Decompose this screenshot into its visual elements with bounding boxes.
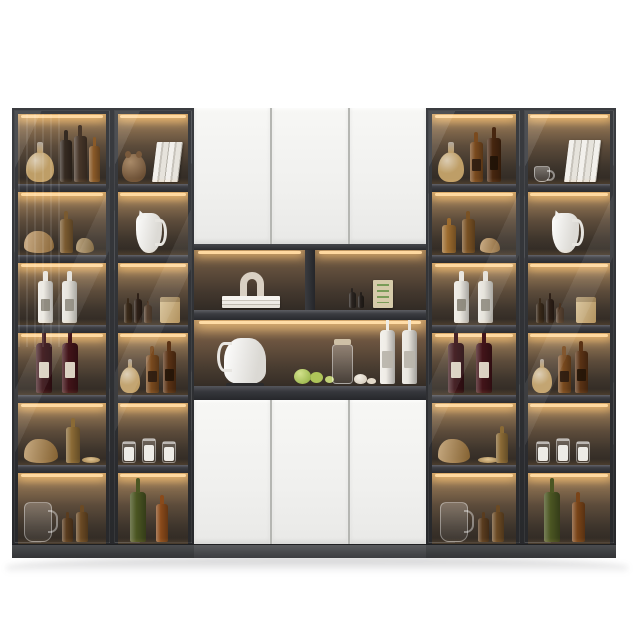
glass-decanter <box>532 367 552 393</box>
right-outer-cabinet-shelf-4 <box>528 333 610 395</box>
candle-jar <box>142 438 156 463</box>
right-inner-cabinet-shelf-6 <box>432 473 516 544</box>
whisky-bottle <box>575 351 588 393</box>
white-ceramic-bottle <box>478 281 493 323</box>
glass-decanter <box>120 367 140 393</box>
white-book-stack <box>222 296 280 308</box>
shelf-board <box>18 184 106 192</box>
gold-glass-decor <box>76 238 94 253</box>
bear-figurine <box>122 154 146 182</box>
shelf-board <box>18 465 106 473</box>
condiment-bottle <box>536 303 544 323</box>
green-wine-bottle <box>130 492 146 542</box>
amber-bottle <box>66 427 80 463</box>
left-inner-cabinet-shelf-1 <box>118 114 188 184</box>
right-outer-cabinet-shelf-2 <box>528 192 610 255</box>
white-ceramic-bottle <box>62 281 77 323</box>
glass-pitcher <box>440 502 468 542</box>
white-wine-bottle <box>402 330 417 384</box>
shelf-board <box>528 395 610 403</box>
candle-jar <box>556 438 570 463</box>
right-inner-cabinet-shelf-4 <box>432 333 516 395</box>
floor-shadow <box>6 557 628 573</box>
center-top-door-3 <box>350 108 426 244</box>
condiment-bottle <box>144 305 152 323</box>
left-inner-cabinet-shelf-5 <box>118 403 188 465</box>
shelf-board <box>18 325 106 333</box>
red-wine-bottle <box>448 343 464 393</box>
center-top-door-2 <box>272 108 348 244</box>
amber-glass-decor <box>438 439 470 463</box>
left-inner-cabinet-plinth <box>112 544 194 558</box>
white-jug <box>552 213 579 253</box>
right-inner-cabinet-shelf-2 <box>432 192 516 255</box>
shelf-board <box>18 255 106 263</box>
left-outer-cabinet <box>12 108 112 557</box>
right-outer-cabinet <box>522 108 616 557</box>
display-niche-right <box>315 250 426 310</box>
kraft-paper-bag <box>160 297 180 323</box>
whisky-bottle <box>558 355 571 393</box>
left-outer-cabinet-shelf-4 <box>18 333 106 395</box>
condiment-bottle <box>134 299 142 323</box>
garlic-bulbs <box>354 374 367 384</box>
left-outer-cabinet-shelf-2 <box>18 192 106 255</box>
shelf-board <box>528 184 610 192</box>
white-books <box>564 140 601 182</box>
shelf-board <box>432 255 516 263</box>
left-outer-cabinet-plinth <box>12 544 112 558</box>
left-inner-cabinet-shelf-4 <box>118 333 188 395</box>
dark-liquor-bottle <box>60 140 72 182</box>
whisky-bottle <box>146 355 159 393</box>
center-bottom-doors <box>194 400 426 544</box>
white-electric-kettle <box>224 338 266 384</box>
center-top-doors <box>194 108 426 244</box>
red-wine-bottle <box>62 343 78 393</box>
right-inner-cabinet-shelf-1 <box>432 114 516 184</box>
kraft-paper-bag <box>576 297 596 323</box>
right-inner-cabinet-plinth <box>426 544 522 558</box>
center-plinth <box>194 544 426 558</box>
right-outer-cabinet-plinth <box>522 544 616 558</box>
dark-liquor-bottle <box>74 136 87 182</box>
shelf-board <box>528 255 610 263</box>
center-bottom-door-2 <box>272 400 348 544</box>
right-inner-cabinet <box>426 108 522 557</box>
red-wine-bottle <box>476 343 492 393</box>
left-outer-cabinet-shelf-5 <box>18 403 106 465</box>
amber-liquor-bottle <box>89 146 100 182</box>
condiment-bottle <box>124 303 132 323</box>
green-apples <box>294 369 311 384</box>
oil-bottle <box>492 512 504 542</box>
glass-pitcher <box>24 502 52 542</box>
amber-bottle <box>156 504 168 542</box>
amber-bottle <box>60 219 73 253</box>
condiment-bottle <box>556 307 564 323</box>
glass-teacup <box>534 166 550 182</box>
gold-plate <box>478 457 498 463</box>
left-inner-cabinet <box>112 108 194 557</box>
candle-jar <box>576 441 590 463</box>
center-bottom-door-3 <box>350 400 426 544</box>
right-inner-cabinet-shelf-3 <box>432 263 516 325</box>
amber-bottle <box>572 502 585 542</box>
shelf-board <box>432 184 516 192</box>
left-inner-cabinet-shelf-2 <box>118 192 188 255</box>
right-inner-cabinet-shelf-5 <box>432 403 516 465</box>
left-inner-cabinet-interior <box>118 114 188 544</box>
arch-sculpture <box>240 272 264 296</box>
shelf-board <box>18 395 106 403</box>
white-wine-bottle <box>380 330 395 384</box>
shelf-board <box>432 325 516 333</box>
red-wine-bottle <box>36 343 52 393</box>
shelf-board <box>118 255 188 263</box>
white-jug <box>136 213 162 253</box>
left-inner-cabinet-shelf-6 <box>118 473 188 544</box>
right-outer-cabinet-shelf-5 <box>528 403 610 465</box>
amber-bottle <box>442 225 456 253</box>
shelf-board <box>528 465 610 473</box>
counter-board <box>194 386 426 400</box>
gold-plate <box>82 457 100 463</box>
green-wine-bottle <box>544 492 560 542</box>
small-dark-bottle <box>358 295 364 308</box>
counter-niche <box>194 320 426 386</box>
shelf-board <box>118 325 188 333</box>
gold-glass-decor <box>480 238 500 253</box>
candle-jar <box>162 441 176 463</box>
white-books <box>152 142 183 182</box>
left-outer-cabinet-shelf-3 <box>18 263 106 325</box>
oil-bottle <box>62 518 73 542</box>
white-ceramic-bottle <box>454 281 469 323</box>
left-outer-cabinet-shelf-6 <box>18 473 106 544</box>
product-photo-stage <box>0 0 640 640</box>
whisky-bottle <box>470 142 483 182</box>
shelf-board <box>528 325 610 333</box>
white-ceramic-bottle <box>38 281 53 323</box>
amber-bottle <box>496 433 508 463</box>
right-inner-cabinet-interior <box>432 114 516 544</box>
right-outer-cabinet-shelf-1 <box>528 114 610 184</box>
left-inner-cabinet-shelf-3 <box>118 263 188 325</box>
gold-glass-decor <box>24 231 54 253</box>
display-niche-left <box>194 250 305 310</box>
shelf-board <box>432 465 516 473</box>
shelf-board <box>118 184 188 192</box>
left-outer-cabinet-shelf-1 <box>18 114 106 184</box>
left-outer-cabinet-interior <box>18 114 106 544</box>
glass-decanter <box>438 152 464 182</box>
center-top-door-1 <box>194 108 270 244</box>
glass-decanter <box>26 152 54 182</box>
shelf-board <box>432 395 516 403</box>
center-section <box>194 108 426 557</box>
green-print-card <box>373 280 393 308</box>
right-outer-cabinet-interior <box>528 114 610 544</box>
oil-bottle <box>76 512 88 542</box>
display-niches <box>194 250 426 310</box>
niche-shelf-board <box>194 310 426 320</box>
right-outer-cabinet-shelf-3 <box>528 263 610 325</box>
right-outer-cabinet-shelf-6 <box>528 473 610 544</box>
glass-carafe <box>332 344 353 384</box>
small-dark-bottle <box>349 292 356 308</box>
condiment-bottle <box>546 299 554 323</box>
candle-jar <box>536 441 550 463</box>
shelf-board <box>118 465 188 473</box>
niche-divider <box>305 250 315 310</box>
amber-bottle <box>462 219 475 253</box>
candle-jar <box>122 441 136 463</box>
shelf-board <box>118 395 188 403</box>
oil-bottle <box>478 518 489 542</box>
amber-glass-decor <box>24 439 58 463</box>
whisky-bottle <box>163 351 176 393</box>
whisky-bottle <box>487 138 501 182</box>
center-bottom-door-1 <box>194 400 270 544</box>
